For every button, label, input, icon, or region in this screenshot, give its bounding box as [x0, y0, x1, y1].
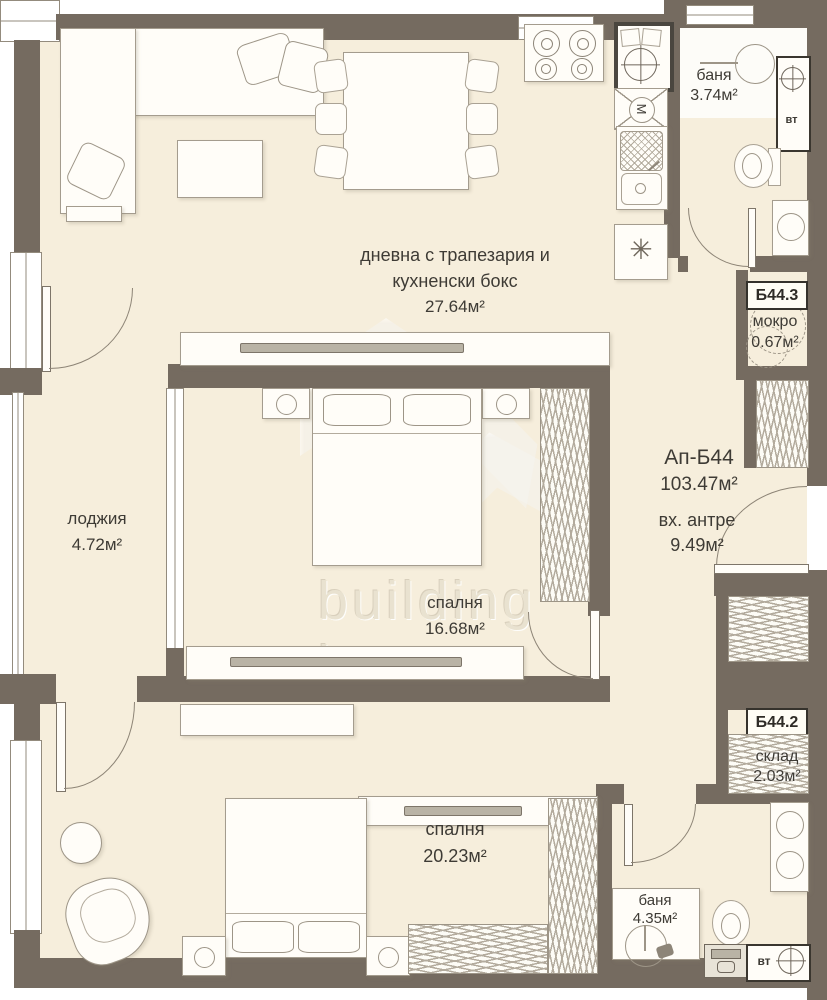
wall-bedroom1-right [588, 364, 610, 616]
boiler-box: М [614, 88, 668, 130]
coffee-table [177, 140, 263, 198]
washing-machine [704, 944, 748, 978]
apartment-area: 103.47м² [625, 471, 773, 498]
bedroom2-name: спалня [393, 816, 517, 843]
blanket-line [313, 433, 481, 434]
bath1-area: 3.74м² [676, 86, 752, 106]
bedroom2-wardrobe-vertical [548, 798, 598, 974]
bedroom2-dresser [180, 704, 354, 736]
entrance-door-leaf [714, 564, 809, 574]
bed-pillow [232, 921, 294, 953]
floor-plan: building box [0, 0, 827, 1000]
entry-area: 9.49м² [628, 533, 766, 558]
wall-left-upper [14, 40, 40, 252]
dining-table [343, 52, 469, 190]
wall-mid-right-block [716, 662, 827, 710]
dining-chair [464, 58, 500, 94]
bedroom1-name: спалня [393, 590, 517, 616]
apartment-label: Ап-Б44 103.47м² [625, 444, 773, 498]
apartment-id: Ап-Б44 [625, 444, 773, 471]
wall-left-bed2-lower [14, 930, 40, 970]
lamp-icon [276, 394, 297, 415]
living-room-label: дневна с трапезария и кухненски бокс 27.… [295, 242, 615, 320]
wall-closet2-left [716, 588, 728, 666]
bath1-door-leaf [748, 208, 756, 268]
bedroom2-label: спалня 20.23м² [393, 816, 517, 870]
fridge-cabinet: ✳ [614, 224, 668, 280]
sink-drain-icon [635, 183, 646, 194]
wall-bath1-bottom-right [750, 256, 807, 272]
window-bed2-left [10, 740, 42, 934]
bath1-name: баня [676, 66, 752, 86]
window-loggia-left [12, 392, 24, 678]
bedroom1-label: спалня 16.68м² [393, 590, 517, 642]
living-name-line2: кухненски бокс [295, 268, 615, 294]
bath2-vanity [770, 802, 809, 892]
blanket-line [226, 913, 366, 914]
vent-circle-icon [624, 48, 657, 81]
bath2-name: баня [614, 892, 696, 910]
lamp-icon [378, 947, 399, 968]
bedroom2-wardrobe-horizontal [408, 924, 548, 974]
bath2-shaft: вт [746, 944, 811, 982]
nightstand [482, 388, 530, 419]
loggia-area: 4.72м² [38, 532, 156, 558]
dining-chair [313, 144, 349, 180]
shaft-bottom-label: вт [752, 954, 776, 968]
bed-double [312, 388, 482, 566]
nightstand [182, 936, 226, 976]
wall-bedroom1-left-stub [166, 648, 184, 678]
vent-circle-icon [781, 67, 804, 90]
washbasin-icon [777, 213, 805, 241]
wall-closet2-top-stub [716, 588, 827, 596]
mokro-area: 0.67м² [738, 334, 812, 352]
dining-chair [313, 58, 349, 94]
loggia-label: лоджия 4.72м² [38, 506, 156, 558]
shower-arm-icon [700, 62, 738, 64]
loggia-name: лоджия [38, 506, 156, 532]
wall-mokro-bottom [736, 366, 827, 380]
dining-chair [315, 103, 347, 135]
entrance-opening [807, 486, 827, 570]
wall-bath1-bottom-left [678, 256, 688, 272]
bedroom2-area: 20.23м² [393, 843, 517, 870]
window-bath1-top [686, 5, 754, 25]
shaft-hatch-square [620, 28, 641, 47]
wall-bath2-top-left [610, 784, 624, 804]
sofa-ottoman [66, 206, 122, 222]
dining-chair [466, 103, 498, 135]
stove-burner-icon [569, 30, 596, 57]
washer-door-icon [717, 961, 735, 973]
stove [524, 24, 604, 82]
mokro-name: мокро [738, 313, 812, 331]
bath1-label: баня 3.74м² [676, 66, 752, 106]
bath1-shaft: вт [776, 56, 811, 152]
kitchen-sink [616, 126, 668, 210]
wall-left-block-loggia-bottom [0, 674, 56, 704]
stove-burner-icon [533, 30, 560, 57]
window-living-left [10, 252, 42, 372]
dining-chair [464, 144, 500, 180]
sklad-area: 2.03м² [742, 768, 812, 786]
stove-burner-icon [571, 58, 593, 80]
kitchen-shaft [614, 22, 674, 92]
badge-b442: Б44.2 [746, 708, 808, 737]
stove-burner-icon [535, 58, 557, 80]
bed-pillow [403, 394, 471, 426]
living-area: 27.64м² [295, 294, 615, 320]
wall-bedroom2-right [596, 784, 612, 958]
bedroom1-area: 16.68м² [393, 616, 517, 642]
shower-arm-icon [644, 925, 646, 951]
tv-icon [230, 657, 462, 667]
lamp-icon [496, 394, 517, 415]
entry-name: вх. антре [628, 508, 766, 533]
washer-drawer [711, 949, 741, 959]
bath1-vanity [772, 200, 809, 256]
washbasin-icon [776, 811, 804, 839]
bed-pillow [298, 921, 360, 953]
window-top-left [0, 0, 60, 42]
wall-left-bed2-upper [14, 702, 40, 742]
living-name-line1: дневна с трапезария и [295, 242, 615, 268]
wall-bedroom1-top [168, 364, 610, 388]
bedroom1-wardrobe [540, 388, 590, 602]
nightstand [366, 936, 410, 976]
toilet-seat-icon [742, 153, 762, 179]
wall-left-block-loggia-top [0, 368, 42, 395]
shaft-hatch-square [641, 28, 662, 47]
tv-icon [240, 343, 464, 353]
bath2-area: 4.35м² [614, 910, 696, 928]
corridor-closet [728, 596, 809, 662]
fridge-symbol-icon: ✳ [615, 233, 667, 266]
tv-icon [404, 806, 522, 816]
lamp-icon [194, 947, 215, 968]
bed-pillow [323, 394, 391, 426]
vent-circle-icon [778, 948, 804, 974]
badge-b443: Б44.3 [746, 281, 808, 310]
shaft-top-label: вт [778, 114, 805, 126]
sklad-name: склад [742, 748, 812, 766]
window-bedroom1-loggia [166, 388, 184, 652]
boiler-label: М [629, 97, 653, 121]
nightstand [262, 388, 310, 419]
toilet-seat-icon [721, 913, 741, 939]
entry-label: вх. антре 9.49м² [628, 508, 766, 558]
bed-double [225, 798, 367, 958]
washbasin-icon [776, 851, 804, 879]
side-table-icon [60, 822, 102, 864]
bath2-label: баня 4.35м² [614, 892, 696, 928]
